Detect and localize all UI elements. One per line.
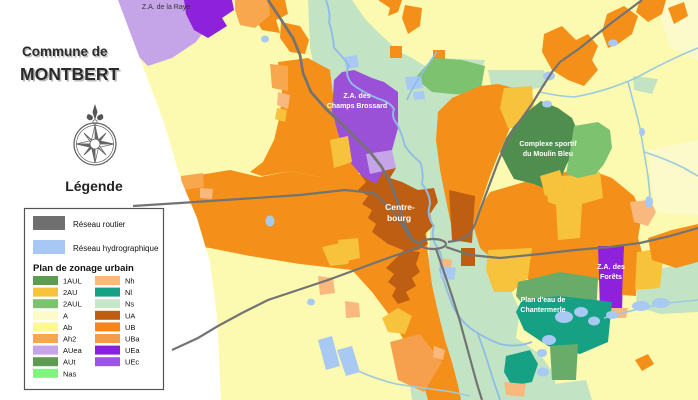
svg-text:Légende: Légende [65, 178, 123, 194]
svg-text:Z.A. de la Raye: Z.A. de la Raye [142, 4, 190, 11]
svg-text:Plan d'eau de: Plan d'eau de [521, 297, 566, 304]
svg-text:du Moulin Bleu: du Moulin Bleu [523, 151, 573, 158]
svg-text:Commune de: Commune de [22, 44, 108, 59]
svg-text:Nh: Nh [125, 277, 135, 286]
svg-text:2AU: 2AU [63, 288, 78, 297]
svg-text:Chantermerle: Chantermerle [520, 307, 565, 314]
svg-text:MONTBERT: MONTBERT [20, 64, 119, 84]
svg-text:AUt: AUt [63, 358, 76, 367]
svg-text:Forêts: Forêts [600, 272, 622, 281]
svg-text:Centre-: Centre- [385, 202, 415, 212]
svg-text:UA: UA [125, 311, 135, 320]
svg-text:UEc: UEc [125, 358, 139, 367]
svg-text:2AUL: 2AUL [63, 300, 82, 309]
svg-text:Ah2: Ah2 [63, 335, 76, 344]
svg-text:UEa: UEa [125, 346, 140, 355]
svg-text:AUea: AUea [63, 346, 83, 355]
svg-text:UB: UB [125, 323, 135, 332]
svg-text:1AUL: 1AUL [63, 277, 82, 286]
svg-text:UBa: UBa [125, 335, 140, 344]
svg-text:Ab: Ab [63, 323, 72, 332]
svg-text:Nas: Nas [63, 369, 77, 378]
svg-text:Plan de zonage urbain: Plan de zonage urbain [33, 263, 134, 274]
svg-text:Complexe sportif: Complexe sportif [519, 141, 577, 148]
svg-text:Champs Brossard: Champs Brossard [327, 103, 387, 110]
svg-text:Ns: Ns [125, 300, 134, 309]
svg-text:Réseau routier: Réseau routier [73, 220, 126, 229]
svg-text:Z.A. des: Z.A. des [597, 262, 625, 271]
svg-text:bourg: bourg [387, 213, 411, 223]
svg-text:Réseau hydrographique: Réseau hydrographique [73, 244, 159, 253]
svg-text:Nl: Nl [125, 288, 132, 297]
svg-text:Z.A. des: Z.A. des [343, 93, 370, 100]
svg-text:A: A [63, 311, 68, 320]
